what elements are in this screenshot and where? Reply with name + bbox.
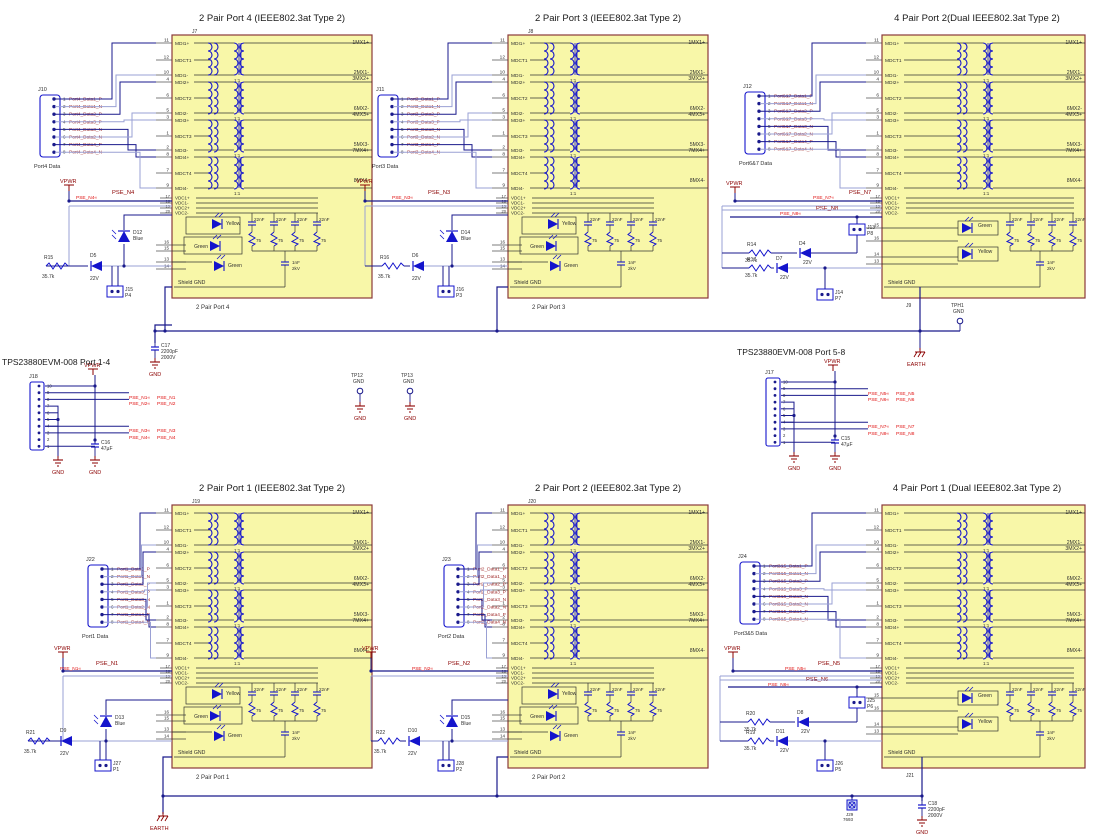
hv-cap-value: 1nF xyxy=(1047,730,1055,735)
connector-pin xyxy=(38,418,41,421)
pin-number: 15 xyxy=(164,246,170,251)
pse-connector[interactable] xyxy=(30,382,44,450)
header-position-label: P2 xyxy=(456,767,462,773)
jumper-header[interactable] xyxy=(107,286,123,297)
led-wire xyxy=(452,215,508,230)
turns-ratio: 1:1 xyxy=(983,661,990,666)
junction-dot xyxy=(823,266,826,269)
res-ref: R19 xyxy=(746,730,755,736)
pin-name: MDI4+ xyxy=(511,625,525,631)
shield-bus xyxy=(497,757,508,796)
schematic-drawing: J72 Pair Port 411MDI1+12MDCT110MDI1-4MDI… xyxy=(0,0,1097,840)
shield-gnd-label: Shield GND xyxy=(514,280,542,286)
resistor-symbol xyxy=(748,719,770,725)
pin-number: 10 xyxy=(874,540,880,546)
led-arrow xyxy=(94,720,98,724)
connector-pin xyxy=(38,438,41,441)
block-ref: J21 xyxy=(906,773,914,779)
led-arrow xyxy=(440,230,444,234)
res-value: 75 xyxy=(614,238,620,243)
connector-pin xyxy=(774,401,777,404)
zener-value: 22V xyxy=(60,751,70,757)
data-pair-wire xyxy=(459,622,492,658)
led-color-label: Green xyxy=(194,714,208,720)
mx-label: 4MX3+ xyxy=(352,112,369,118)
connector-label: Port2 Data xyxy=(438,634,465,640)
resistor-symbol xyxy=(378,738,400,744)
shield-gnd-label: Shield GND xyxy=(514,750,542,756)
earth-label: EARTH xyxy=(907,362,926,368)
jumper-header[interactable] xyxy=(817,760,833,771)
connector-pin xyxy=(38,411,41,414)
junction-dot xyxy=(122,264,125,267)
pin-name: MDCT2 xyxy=(885,96,902,102)
schematic-canvas: J72 Pair Port 411MDI1+12MDCT110MDI1-4MDI… xyxy=(0,0,1097,840)
resistor-symbol xyxy=(748,738,770,744)
block-title-port3: 2 Pair Port 3 (IEEE802.3at Type 2) xyxy=(488,13,728,24)
pin-name: MDCT4 xyxy=(175,641,192,647)
turns-ratio: 1:1 xyxy=(234,661,241,666)
connector-ref: J10 xyxy=(38,87,47,93)
led-arrow xyxy=(440,715,444,719)
pin-name: MDCT3 xyxy=(885,134,902,140)
turns-ratio: 1:1 xyxy=(570,191,577,196)
mx-label: 7MX4+ xyxy=(688,148,705,154)
hv-cap-voltage: 2kV xyxy=(292,736,301,741)
zener-ref: D7 xyxy=(776,256,783,262)
block-ref: J7 xyxy=(192,29,198,35)
led-color-label: Green xyxy=(194,244,208,250)
led-wire xyxy=(106,700,172,715)
res-value: 35.7k xyxy=(24,749,37,755)
zener-diode-symbol xyxy=(777,736,788,746)
led-color: Blue xyxy=(133,236,143,242)
pin-number: 13 xyxy=(164,727,170,732)
pin-name: VDC2- xyxy=(885,681,899,686)
pin-number: 13 xyxy=(500,257,506,262)
pin-name: MDI2+ xyxy=(885,80,899,86)
data-connector[interactable] xyxy=(444,565,464,627)
turns-ratio: 1:1 xyxy=(570,661,577,666)
zener-diode-symbol xyxy=(413,261,424,271)
testpoint[interactable] xyxy=(957,318,963,324)
pin-number: 2 xyxy=(166,615,169,621)
connector-net-name: Port2_Data1_N xyxy=(473,574,507,580)
turns-ratio: 1:1 xyxy=(234,191,241,196)
block-title-4pair-port2: 4 Pair Port 2(Dual IEEE802.3at Type 2) xyxy=(857,13,1097,24)
cap-value: 22nF xyxy=(612,687,623,692)
pin-number: 8 xyxy=(876,152,879,158)
earth-hatch xyxy=(161,816,164,821)
pin-number: 1 xyxy=(876,601,879,607)
block-ref: J9 xyxy=(906,303,912,309)
vpwr-label: VPWR xyxy=(726,181,743,187)
connector-ref: J18 xyxy=(29,374,38,380)
pin-number: 20 xyxy=(502,679,507,684)
pin-name: MDI2- xyxy=(511,581,524,587)
res-value: 75 xyxy=(1077,708,1083,713)
header-pin xyxy=(820,764,823,767)
res-value: 75 xyxy=(635,238,641,243)
data-connector[interactable] xyxy=(40,95,60,157)
header-pin xyxy=(447,290,450,293)
led-color-label: Green xyxy=(530,714,544,720)
mx-label: 3MX2+ xyxy=(352,546,369,552)
data-connector[interactable] xyxy=(740,562,760,624)
pin-number: 15 xyxy=(874,693,880,698)
pse-net-label: PSE_N1 xyxy=(96,661,118,667)
pin-name: MDCT3 xyxy=(175,604,192,610)
pin-number: 5 xyxy=(502,108,505,114)
res-value: 75 xyxy=(1056,238,1062,243)
pse-net-name: PSE_N5 xyxy=(896,391,915,397)
mx-label: 8MX4- xyxy=(690,648,706,654)
pin-number: 14 xyxy=(500,734,506,739)
pin-number: 6 xyxy=(166,563,169,569)
cap-value: 22nF xyxy=(590,217,601,222)
data-pair-wire xyxy=(760,126,866,150)
vpwr-label: VPWR xyxy=(362,646,379,652)
mx-label: 3MX2+ xyxy=(688,76,705,82)
net-flag: PSE_N7« xyxy=(868,424,889,430)
zener-ref: D4 xyxy=(799,241,806,247)
jumper-header[interactable] xyxy=(438,760,454,771)
pin-name: MDCT1 xyxy=(885,528,902,534)
blue-led-symbol xyxy=(446,716,458,727)
block-ref: J8 xyxy=(528,29,534,35)
shield-bus xyxy=(155,325,172,343)
pin-name: MDI1+ xyxy=(175,41,189,47)
pin-number: 7 xyxy=(876,638,879,644)
pin-number: 11 xyxy=(500,38,505,44)
junction-dot xyxy=(161,794,164,797)
pin-number: 6 xyxy=(876,93,879,99)
resistor-symbol xyxy=(382,263,404,269)
cap-value: 22nF xyxy=(633,687,644,692)
pin-number: 15 xyxy=(164,716,170,721)
mx-label: 4MX3+ xyxy=(1065,112,1082,118)
pin-name: MDI2- xyxy=(175,111,188,117)
pin-name: MDI3+ xyxy=(511,118,525,124)
pin-name: MDI3- xyxy=(175,148,188,154)
pin-name: VDC2- xyxy=(175,211,189,216)
junction-dot xyxy=(823,739,826,742)
mx-label: 8MX4- xyxy=(1067,648,1083,654)
junction-dot xyxy=(450,264,453,267)
cap-value: 22nF xyxy=(297,217,308,222)
gnd-label: GND xyxy=(829,466,841,472)
res-ref: R22 xyxy=(376,730,385,736)
mx-label: 1MX1+ xyxy=(352,40,369,46)
res-value: 75 xyxy=(657,708,663,713)
mx-label: 1MX1+ xyxy=(1065,510,1082,516)
cap-value: 22nF xyxy=(276,217,287,222)
testpoint[interactable] xyxy=(357,388,363,394)
jumper-header[interactable] xyxy=(849,224,865,235)
blue-led-symbol xyxy=(100,716,112,727)
connector-pin xyxy=(38,432,41,435)
connector-pin xyxy=(38,405,41,408)
net-flag: PSE_N5« xyxy=(785,666,806,672)
jumper-header[interactable] xyxy=(438,286,454,297)
res-value: 75 xyxy=(1014,238,1020,243)
led-wire xyxy=(124,215,172,230)
data-pair-wire xyxy=(755,583,866,604)
header-position-label: P5 xyxy=(835,767,841,773)
data-pair-wire xyxy=(755,513,866,566)
block-caption: 2 Pair Port 3 xyxy=(532,305,566,311)
pin-number: 1 xyxy=(166,131,169,137)
pin-number: 9 xyxy=(166,183,169,189)
header-pin xyxy=(441,290,444,293)
jumper-header[interactable] xyxy=(817,289,833,300)
pin-number: 8 xyxy=(166,152,169,158)
junction-dot xyxy=(855,215,858,218)
connector-pin xyxy=(774,421,777,424)
gnd-label: GND xyxy=(149,372,161,378)
pin-name: MDI3- xyxy=(175,618,188,624)
pin-name: MDI2- xyxy=(511,111,524,117)
header-pin xyxy=(820,293,823,296)
pin-number: 9 xyxy=(876,653,879,659)
pse-net-label: PSE_N8 xyxy=(816,206,838,212)
cap-value: 22nF xyxy=(254,217,265,222)
shield-gnd-label: Shield GND xyxy=(178,750,206,756)
net-flag: PSE_N4« xyxy=(76,195,97,201)
magnetics-block xyxy=(508,505,708,768)
earth-hatch xyxy=(922,352,925,357)
cap-voltage: 2000V xyxy=(161,355,176,361)
pin-number: 14 xyxy=(874,252,880,257)
res-ref: R21 xyxy=(26,730,35,736)
jumper-header[interactable] xyxy=(849,697,865,708)
data-pair-wire xyxy=(393,43,492,99)
pin-name: MDI2+ xyxy=(511,550,525,556)
header-pin xyxy=(104,764,107,767)
pin-number: 10 xyxy=(164,70,170,76)
pin-number: 12 xyxy=(500,55,506,61)
zener-diode-symbol xyxy=(798,717,809,727)
led-color-label: Yellow xyxy=(226,221,241,227)
connector-pin-number: 2 xyxy=(783,433,786,438)
connector-pin xyxy=(38,391,41,394)
pin-number: 13 xyxy=(164,257,170,262)
junction-dot xyxy=(67,199,70,202)
data-pair-wire xyxy=(55,43,156,99)
pin-name: MDCT3 xyxy=(511,134,528,140)
pin-name: MDCT3 xyxy=(175,134,192,140)
pin-name: MDI3+ xyxy=(511,588,525,594)
pin-number: 7 xyxy=(166,168,169,174)
mx-label: 1MX1+ xyxy=(1065,40,1082,46)
data-connector[interactable] xyxy=(378,95,398,157)
pin-number: 10 xyxy=(874,70,880,76)
pin-name: VDC2- xyxy=(885,211,899,216)
cap-value: 22nF xyxy=(655,687,666,692)
header-position-label: P8 xyxy=(867,231,873,237)
mx-label: 3MX2+ xyxy=(1065,76,1082,82)
res-value: 75 xyxy=(1035,238,1041,243)
cap-value: 22nF xyxy=(1075,687,1086,692)
pin-number: 13 xyxy=(874,729,880,734)
pin-name: VDC2- xyxy=(175,681,189,686)
shield-gnd-label: Shield GND xyxy=(888,750,916,756)
res-value: 35.7k xyxy=(745,273,758,279)
pin-name: MDCT1 xyxy=(175,528,192,534)
vpwr-label: VPWR xyxy=(54,646,71,652)
hv-cap-voltage: 2kV xyxy=(1047,266,1056,271)
data-connector[interactable] xyxy=(745,92,765,154)
vpwr-label: VPWR xyxy=(824,359,841,365)
pin-name: MDCT4 xyxy=(511,171,528,177)
vpwr-label: VPWR xyxy=(724,646,741,652)
hv-cap-value: 1nF xyxy=(292,730,300,735)
pin-number: 12 xyxy=(164,55,170,61)
pse-net-label: PSE_N4 xyxy=(112,190,135,196)
pin-number: 16 xyxy=(164,710,170,715)
pin-number: 9 xyxy=(502,653,505,659)
pin-name: MDI1+ xyxy=(511,511,525,517)
pin-number: 3 xyxy=(166,585,169,591)
gnd-label: GND xyxy=(52,470,64,476)
cap-value: 47µF xyxy=(841,442,853,448)
pse-connector[interactable] xyxy=(766,378,780,446)
connector-ref: J23 xyxy=(442,557,451,563)
pin-name: MDI2- xyxy=(175,581,188,587)
pin-name: MDI1- xyxy=(885,543,898,549)
pin-number: 7 xyxy=(876,168,879,174)
connector-pin xyxy=(774,407,777,410)
connector-ref: J12 xyxy=(743,84,752,90)
block-title-port2: 2 Pair Port 2 (IEEE802.3at Type 2) xyxy=(488,483,728,494)
hv-cap-voltage: 2kV xyxy=(628,266,637,271)
pin-name: MDI4- xyxy=(511,186,524,192)
block-ref: J20 xyxy=(528,499,536,505)
led-color-label: Yellow xyxy=(978,249,993,255)
pin-name: MDI4- xyxy=(175,656,188,662)
pin-name: MDI1+ xyxy=(885,511,899,517)
connector-pin xyxy=(774,414,777,417)
data-pair-wire xyxy=(459,513,492,569)
junction-dot xyxy=(495,329,498,332)
pin-name: MDI3+ xyxy=(885,118,899,124)
cap-value: 22nF xyxy=(1075,217,1086,222)
pin-number: 9 xyxy=(876,183,879,189)
zener-ref: D6 xyxy=(412,253,419,259)
pin-number: 15 xyxy=(500,716,506,721)
data-connector[interactable] xyxy=(88,565,108,627)
data-pair-wire xyxy=(760,113,866,134)
pse-net-name: PSE_N8 xyxy=(896,431,915,437)
cap-value: 22nF xyxy=(1054,217,1065,222)
led-color-label: Yellow xyxy=(226,691,241,697)
pse-net-name: PSE_N2 xyxy=(157,401,176,407)
pin-name: MDCT2 xyxy=(511,96,528,102)
res-value: 75 xyxy=(1077,238,1083,243)
pin-number: 1 xyxy=(876,131,879,137)
pin-number: 11 xyxy=(164,508,169,514)
led-color-label: Green xyxy=(564,733,578,739)
shield-bus xyxy=(497,287,508,331)
res-value: 75 xyxy=(614,708,620,713)
pin-number: 5 xyxy=(876,108,879,114)
mx-label: 7MX4+ xyxy=(352,618,369,624)
block-caption: 2 Pair Port 4 xyxy=(196,305,230,311)
block-title-4pair-port1: 4 Pair Port 1 (Dual IEEE802.3at Type 2) xyxy=(857,483,1097,494)
mx-label: 3MX2+ xyxy=(688,546,705,552)
pin-number: 5 xyxy=(166,578,169,584)
turns-ratio: 1:1 xyxy=(983,191,990,196)
block-title-port1: 2 Pair Port 1 (IEEE802.3at Type 2) xyxy=(152,483,392,494)
mx-label: 4MX3+ xyxy=(688,582,705,588)
pin-name: MDI4- xyxy=(885,186,898,192)
zener-diode-symbol xyxy=(777,263,788,273)
mx-label: 1MX1+ xyxy=(688,40,705,46)
pin-name: MDCT3 xyxy=(885,604,902,610)
pin-name: MDI1- xyxy=(511,543,524,549)
junction-dot xyxy=(731,669,734,672)
pin-number: 8 xyxy=(166,622,169,628)
testpoint-subtitle: GND xyxy=(403,379,415,385)
data-pair-wire xyxy=(103,513,156,569)
gnd-label: GND xyxy=(788,466,800,472)
jumper-header[interactable] xyxy=(95,760,111,771)
block-caption: 2 Pair Port 1 xyxy=(196,775,230,781)
net-flag: PSE_N7« xyxy=(813,195,834,201)
led-color: Blue xyxy=(115,721,125,727)
pin-number: 8 xyxy=(502,152,505,158)
connector-pin xyxy=(774,428,777,431)
data-pair-wire xyxy=(103,622,156,658)
led-color-label: Green xyxy=(228,733,242,739)
pin-number: 2 xyxy=(166,145,169,151)
led-arrow xyxy=(94,715,98,719)
hv-cap-voltage: 2kV xyxy=(1047,736,1056,741)
cap-value: 22nF xyxy=(297,687,308,692)
pin-name: MDI3+ xyxy=(175,118,189,124)
header-pin xyxy=(826,764,829,767)
block-caption: 2 Pair Port 2 xyxy=(532,775,566,781)
pin-name: MDCT1 xyxy=(511,528,528,534)
res-ref: R17 xyxy=(747,257,756,263)
pin-number: 6 xyxy=(876,563,879,569)
pin-number: 16 xyxy=(500,710,506,715)
led-arrow xyxy=(112,230,116,234)
res-value: 75 xyxy=(256,708,262,713)
led-color: Blue xyxy=(461,236,471,242)
pin-number: 5 xyxy=(876,578,879,584)
pse-net-name: PSE_N6 xyxy=(896,397,915,403)
blue-led-symbol xyxy=(446,231,458,242)
mx-label: 4MX3+ xyxy=(352,582,369,588)
block-ref: J19 xyxy=(192,499,200,505)
earth-hatch xyxy=(157,816,160,821)
mx-label: 7MX4+ xyxy=(352,148,369,154)
pin-name: MDI2- xyxy=(885,111,898,117)
pin-number: 4 xyxy=(166,547,169,553)
header-pin xyxy=(826,293,829,296)
connector-ref: J11 xyxy=(376,87,384,93)
pin-number: 12 xyxy=(164,525,170,531)
pin-number: 9 xyxy=(166,653,169,659)
cap-value: 22nF xyxy=(319,217,330,222)
zener-ref: D9 xyxy=(60,728,67,734)
testpoint[interactable] xyxy=(407,388,413,394)
cap-value: 22nF xyxy=(633,217,644,222)
zener-ref: D5 xyxy=(90,253,97,259)
pin-name: MDCT4 xyxy=(885,641,902,647)
zener-value: 22V xyxy=(803,260,813,266)
